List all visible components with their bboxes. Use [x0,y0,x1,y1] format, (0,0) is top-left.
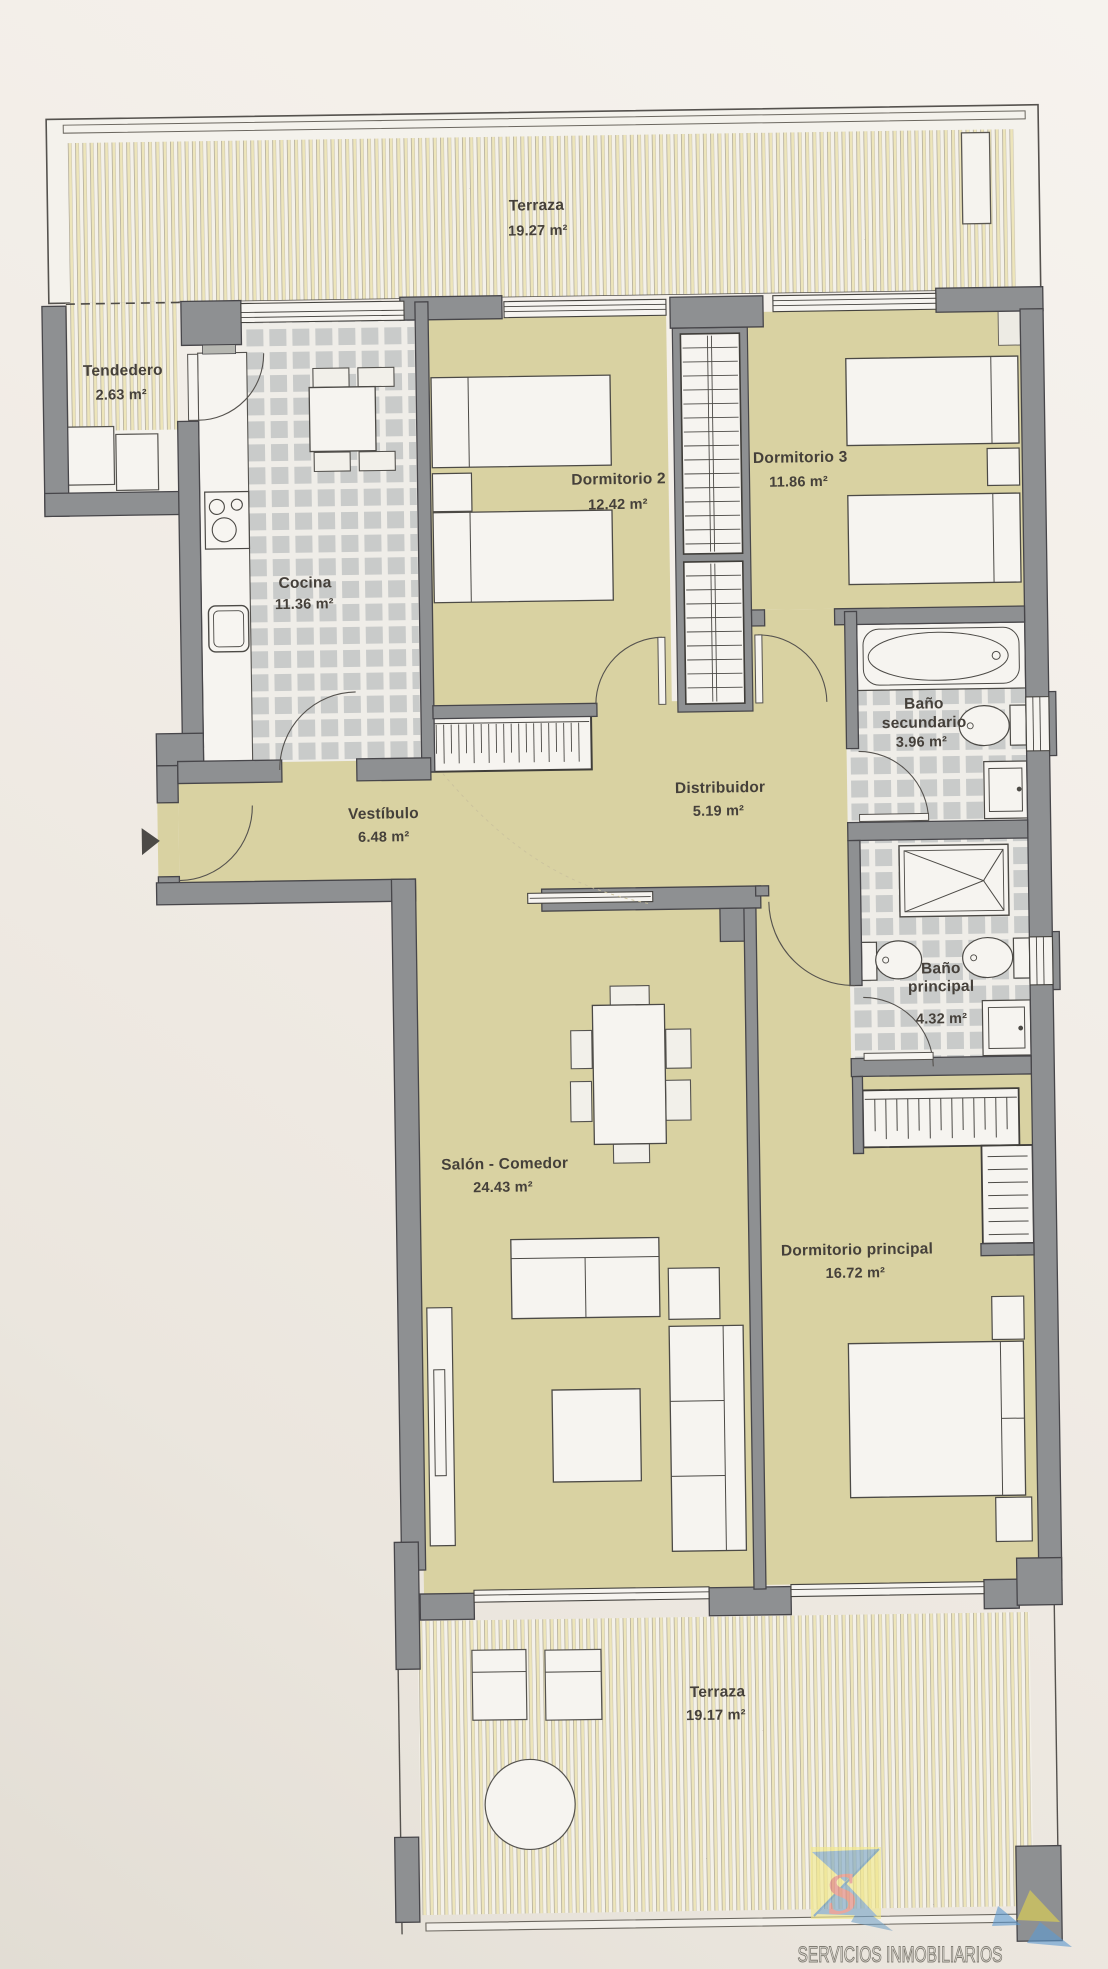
svg-text:11.86 m²: 11.86 m² [769,474,828,491]
svg-text:Dormitorio 3: Dormitorio 3 [753,449,848,467]
svg-text:16.72 m²: 16.72 m² [825,1265,885,1282]
svg-text:12.42 m²: 12.42 m² [588,497,648,514]
svg-text:11.36 m²: 11.36 m² [275,596,334,613]
svg-text:Baño: Baño [921,960,961,978]
svg-text:4.32 m²: 4.32 m² [916,1011,968,1028]
svg-text:Baño: Baño [904,695,944,713]
svg-text:Terraza: Terraza [509,197,565,215]
svg-text:2.63 m²: 2.63 m² [95,387,147,404]
svg-text:Terraza: Terraza [690,1683,746,1701]
svg-text:Tendedero: Tendedero [83,362,163,380]
svg-text:19.17 m²: 19.17 m² [686,1707,746,1724]
svg-text:principal: principal [908,978,975,996]
svg-text:3.96 m²: 3.96 m² [896,734,948,751]
svg-text:19.27 m²: 19.27 m² [508,223,568,240]
svg-text:Distribuidor: Distribuidor [675,779,765,797]
svg-text:secundario: secundario [882,714,967,732]
svg-text:SERVICIOS INMOBILIARIOS: SERVICIOS INMOBILIARIOS [798,1942,1003,1967]
svg-text:Dormitorio 2: Dormitorio 2 [571,470,666,488]
svg-text:5.19 m²: 5.19 m² [693,803,745,820]
svg-text:Cocina: Cocina [278,574,331,592]
svg-text:6.48 m²: 6.48 m² [358,829,410,846]
svg-text:Salón - Comedor: Salón - Comedor [441,1155,568,1174]
svg-text:Vestíbulo: Vestíbulo [348,805,419,823]
svg-text:Dormitorio principal: Dormitorio principal [781,1240,933,1259]
svg-text:24.43 m²: 24.43 m² [473,1179,533,1196]
